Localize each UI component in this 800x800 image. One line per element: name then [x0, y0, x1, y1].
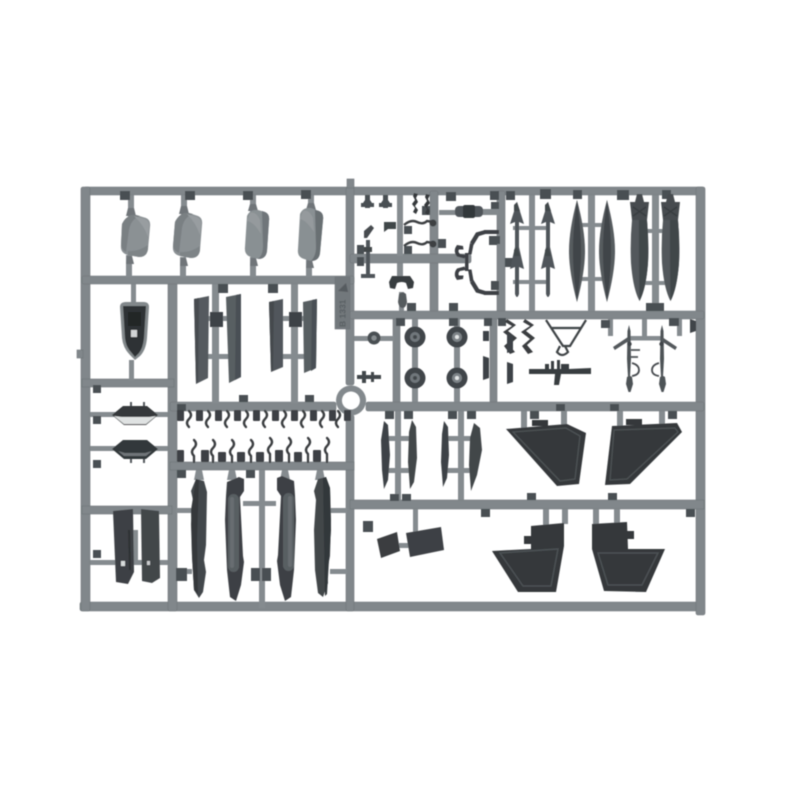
- svg-text:B 1331: B 1331: [338, 299, 348, 327]
